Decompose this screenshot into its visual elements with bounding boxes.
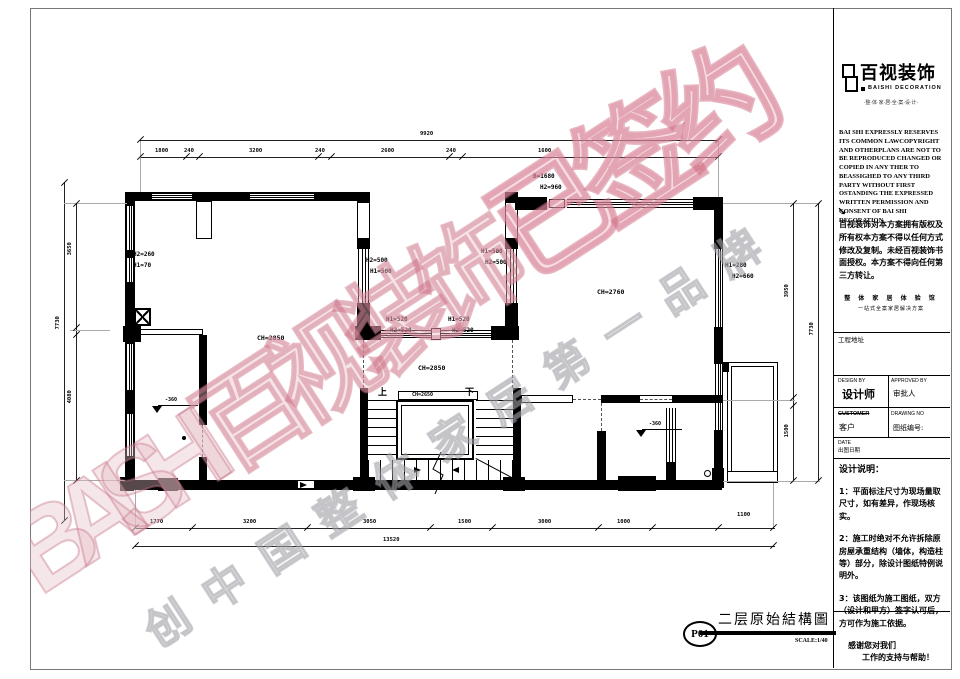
logo-square-icon	[861, 87, 865, 91]
stair-treads	[368, 400, 396, 460]
dim-total-right: 7730	[810, 322, 816, 335]
thanks-line1: 感谢您对我们	[848, 641, 896, 651]
brand-tagline: ·整·体·家·居·全·案·设·计·	[837, 101, 945, 106]
dim-line	[135, 528, 775, 529]
date-value: 出图日期	[838, 449, 860, 455]
hidden-line	[640, 399, 672, 400]
dim-tick	[61, 517, 68, 524]
column	[503, 477, 525, 491]
dim-total-top: 9920	[420, 132, 433, 138]
opening-label: H1=520	[386, 317, 408, 324]
window	[250, 193, 314, 200]
customer-value: 客户	[839, 423, 855, 433]
room-label: CH=2650	[412, 393, 433, 399]
ext-line	[718, 141, 719, 197]
drawing-no-value: 图纸编号:	[893, 424, 923, 432]
bottom-wall	[125, 480, 675, 490]
level-value: -360	[649, 422, 661, 428]
ext-line	[773, 483, 774, 528]
dim-seg: 3050	[363, 520, 376, 526]
window	[126, 206, 134, 250]
window	[715, 249, 723, 327]
right-wall	[714, 327, 723, 364]
opening-label: H2=520	[452, 328, 474, 335]
dim-line	[135, 546, 775, 547]
shaft-box	[134, 308, 151, 326]
dim-seg: 240	[184, 149, 194, 155]
dim-seg: 1000	[617, 520, 630, 526]
dim-tick	[815, 477, 822, 484]
legal-text-en: BAI SHI EXPRESSLY RESERVES ITS COMMON LA…	[839, 129, 945, 225]
notes-title: 设计说明：	[839, 465, 884, 476]
column	[505, 239, 518, 249]
wall	[549, 199, 565, 208]
dim-seg: 2600	[381, 149, 394, 155]
dim-line	[818, 203, 819, 480]
interior-wall	[521, 395, 573, 403]
brand-name: 百视装饰	[860, 63, 936, 85]
symbol-circle	[704, 470, 711, 477]
interior-wall	[137, 329, 203, 335]
stair-break-line	[430, 452, 446, 494]
designer-value: 设计师	[842, 388, 875, 401]
opening-label: H2=500	[366, 258, 388, 265]
opening-label: H2=960	[540, 185, 562, 192]
window	[567, 199, 693, 208]
interior-wall	[199, 457, 207, 482]
dim-seg: 4080	[68, 390, 74, 403]
open-edge	[512, 340, 513, 388]
slogan-line1: 整 体 家 居 体 验 馆	[837, 296, 945, 302]
design-by-label: DESIGN BY	[838, 379, 865, 384]
project-address-label: 工程地址	[838, 337, 864, 344]
window	[506, 249, 517, 303]
opening-label: B=1680	[533, 174, 555, 181]
stair-wall	[513, 388, 521, 482]
dim-seg: 1600	[538, 149, 551, 155]
dim-total-left: 7730	[56, 316, 62, 329]
approver-value: 审批人	[893, 389, 916, 398]
stair-wall	[360, 388, 368, 482]
opening-label: H2=660	[732, 274, 754, 281]
divider	[888, 375, 889, 437]
title-block: 百视装饰 BAISHI DECORATION ·整·体·家·居·全·案·设·计·…	[833, 8, 950, 668]
hidden-line	[573, 399, 601, 400]
dim-total-bottom: 13520	[383, 538, 400, 544]
opening-label: H1=280	[725, 263, 747, 270]
opening-label: H1=520	[448, 317, 470, 324]
ext-line	[64, 203, 127, 204]
dim-seg: 3950	[785, 284, 791, 297]
column	[491, 326, 519, 340]
stair-arrow-icon	[414, 467, 421, 473]
divider	[833, 375, 950, 376]
mullion	[431, 328, 441, 340]
sheet-title: 二层原始結構圖	[718, 612, 830, 629]
column	[158, 478, 178, 491]
dim-line	[140, 157, 718, 158]
ext-line	[135, 490, 136, 529]
window	[126, 344, 134, 390]
ext-line	[723, 400, 795, 401]
dim-seg: 1100	[737, 513, 750, 519]
level-marker-line	[642, 429, 682, 430]
window	[152, 193, 192, 200]
dim-seg: 1800	[155, 149, 168, 155]
right-wall	[714, 197, 723, 249]
drawing-no-label: DRAWING NO	[891, 412, 924, 417]
column	[722, 362, 729, 372]
wall-stub	[196, 201, 212, 239]
column	[712, 468, 724, 488]
stair-up-label: 上	[378, 389, 387, 398]
dim-seg: 3200	[243, 520, 256, 526]
dim-seg: 3650	[68, 242, 74, 255]
dim-seg: 240	[315, 149, 325, 155]
date-label: DATE	[838, 441, 851, 446]
ext-line	[723, 203, 820, 204]
approved-by-label: APPROVED BY	[891, 379, 927, 384]
column	[123, 326, 141, 342]
room-label: CH=2850	[418, 365, 445, 372]
dim-seg: 3200	[249, 149, 262, 155]
dim-seg: 1500	[785, 424, 791, 437]
ext-line	[140, 141, 141, 192]
dim-line	[76, 203, 77, 480]
slogan-line2: 一站式全案家居解决方案	[837, 307, 945, 312]
design-notes: 1：平面标注尺寸为现场量取尺寸，如有差异，作现场核实。 2：施工时绝对不允许拆除…	[839, 486, 946, 640]
arrow-icon: ↘	[837, 206, 846, 217]
divider	[833, 332, 950, 333]
ext-line	[70, 330, 110, 331]
note-item: 1：平面标注尺寸为现场量取尺寸，如有差异，作现场核实。	[839, 486, 946, 523]
floor-plan: H2=260 H1=70 H2=500 H1=500 H1=500 H2=500…	[0, 0, 960, 679]
column	[505, 303, 518, 327]
level-marker-icon	[636, 430, 646, 437]
window	[666, 408, 676, 462]
divider	[833, 407, 950, 408]
divider	[833, 437, 950, 438]
opening-label: H2=520	[390, 328, 412, 335]
opening-label: H1=70	[133, 263, 151, 270]
ext-line	[64, 480, 125, 481]
brand-name-en: BAISHI DECORATION	[868, 86, 942, 92]
stair-down-label: 下	[465, 389, 474, 398]
window	[126, 414, 134, 456]
customer-label: CUSTOMER	[838, 412, 869, 418]
hidden-line	[601, 403, 602, 431]
thanks-line2: 工作的支持与帮助！	[862, 653, 934, 663]
level-marker-line	[158, 405, 198, 406]
ext-line	[723, 481, 820, 482]
opening-label: H1=500	[481, 249, 503, 256]
note-item: 2：施工时绝对不允许拆除原房屋承重结构（墙体，构造柱等）部分，除设计图纸特例说明…	[839, 533, 946, 583]
legal-text-cn: 百视装饰对本方案拥有版权及所有权本方案不得以任何方式修改及复制。未经百视装饰书面…	[839, 219, 945, 283]
dim-seg: 240	[446, 149, 456, 155]
column	[515, 197, 547, 210]
dim-seg: 3000	[538, 520, 551, 526]
dim-seg: 1500	[458, 520, 471, 526]
point-symbol	[182, 436, 186, 440]
dim-tick	[770, 542, 777, 549]
dim-tick	[770, 524, 777, 531]
column	[357, 303, 370, 327]
drawing-sheet: H2=260 H1=70 H2=500 H1=500 H1=500 H2=500…	[0, 0, 960, 679]
divider	[833, 611, 950, 612]
column	[355, 326, 381, 340]
logo-icon	[845, 76, 858, 92]
column	[353, 477, 375, 491]
dim-line	[64, 182, 65, 520]
stair-void	[396, 400, 474, 460]
balcony-inner	[731, 366, 774, 474]
column	[357, 192, 370, 202]
level-value: -360	[165, 398, 177, 404]
open-edge	[363, 340, 364, 388]
section-marker	[297, 480, 315, 489]
dim-seg: 1770	[150, 520, 163, 526]
column	[357, 239, 370, 249]
opening-label: H1=500	[370, 269, 392, 276]
hidden-line	[202, 425, 203, 457]
room-label: CH=2760	[597, 289, 624, 296]
stair-arrow-icon	[452, 467, 459, 473]
column	[666, 462, 676, 482]
opening-label: H2=260	[133, 252, 155, 259]
opening-label: H2=500	[485, 260, 507, 267]
dim-line	[140, 140, 718, 141]
column	[618, 476, 656, 491]
wall	[357, 202, 370, 239]
stair-treads	[476, 400, 513, 460]
level-marker-icon	[152, 406, 162, 413]
interior-wall	[199, 335, 207, 425]
divider	[833, 458, 950, 459]
dim-line	[793, 203, 794, 480]
room-label: CH=2850	[257, 335, 284, 342]
